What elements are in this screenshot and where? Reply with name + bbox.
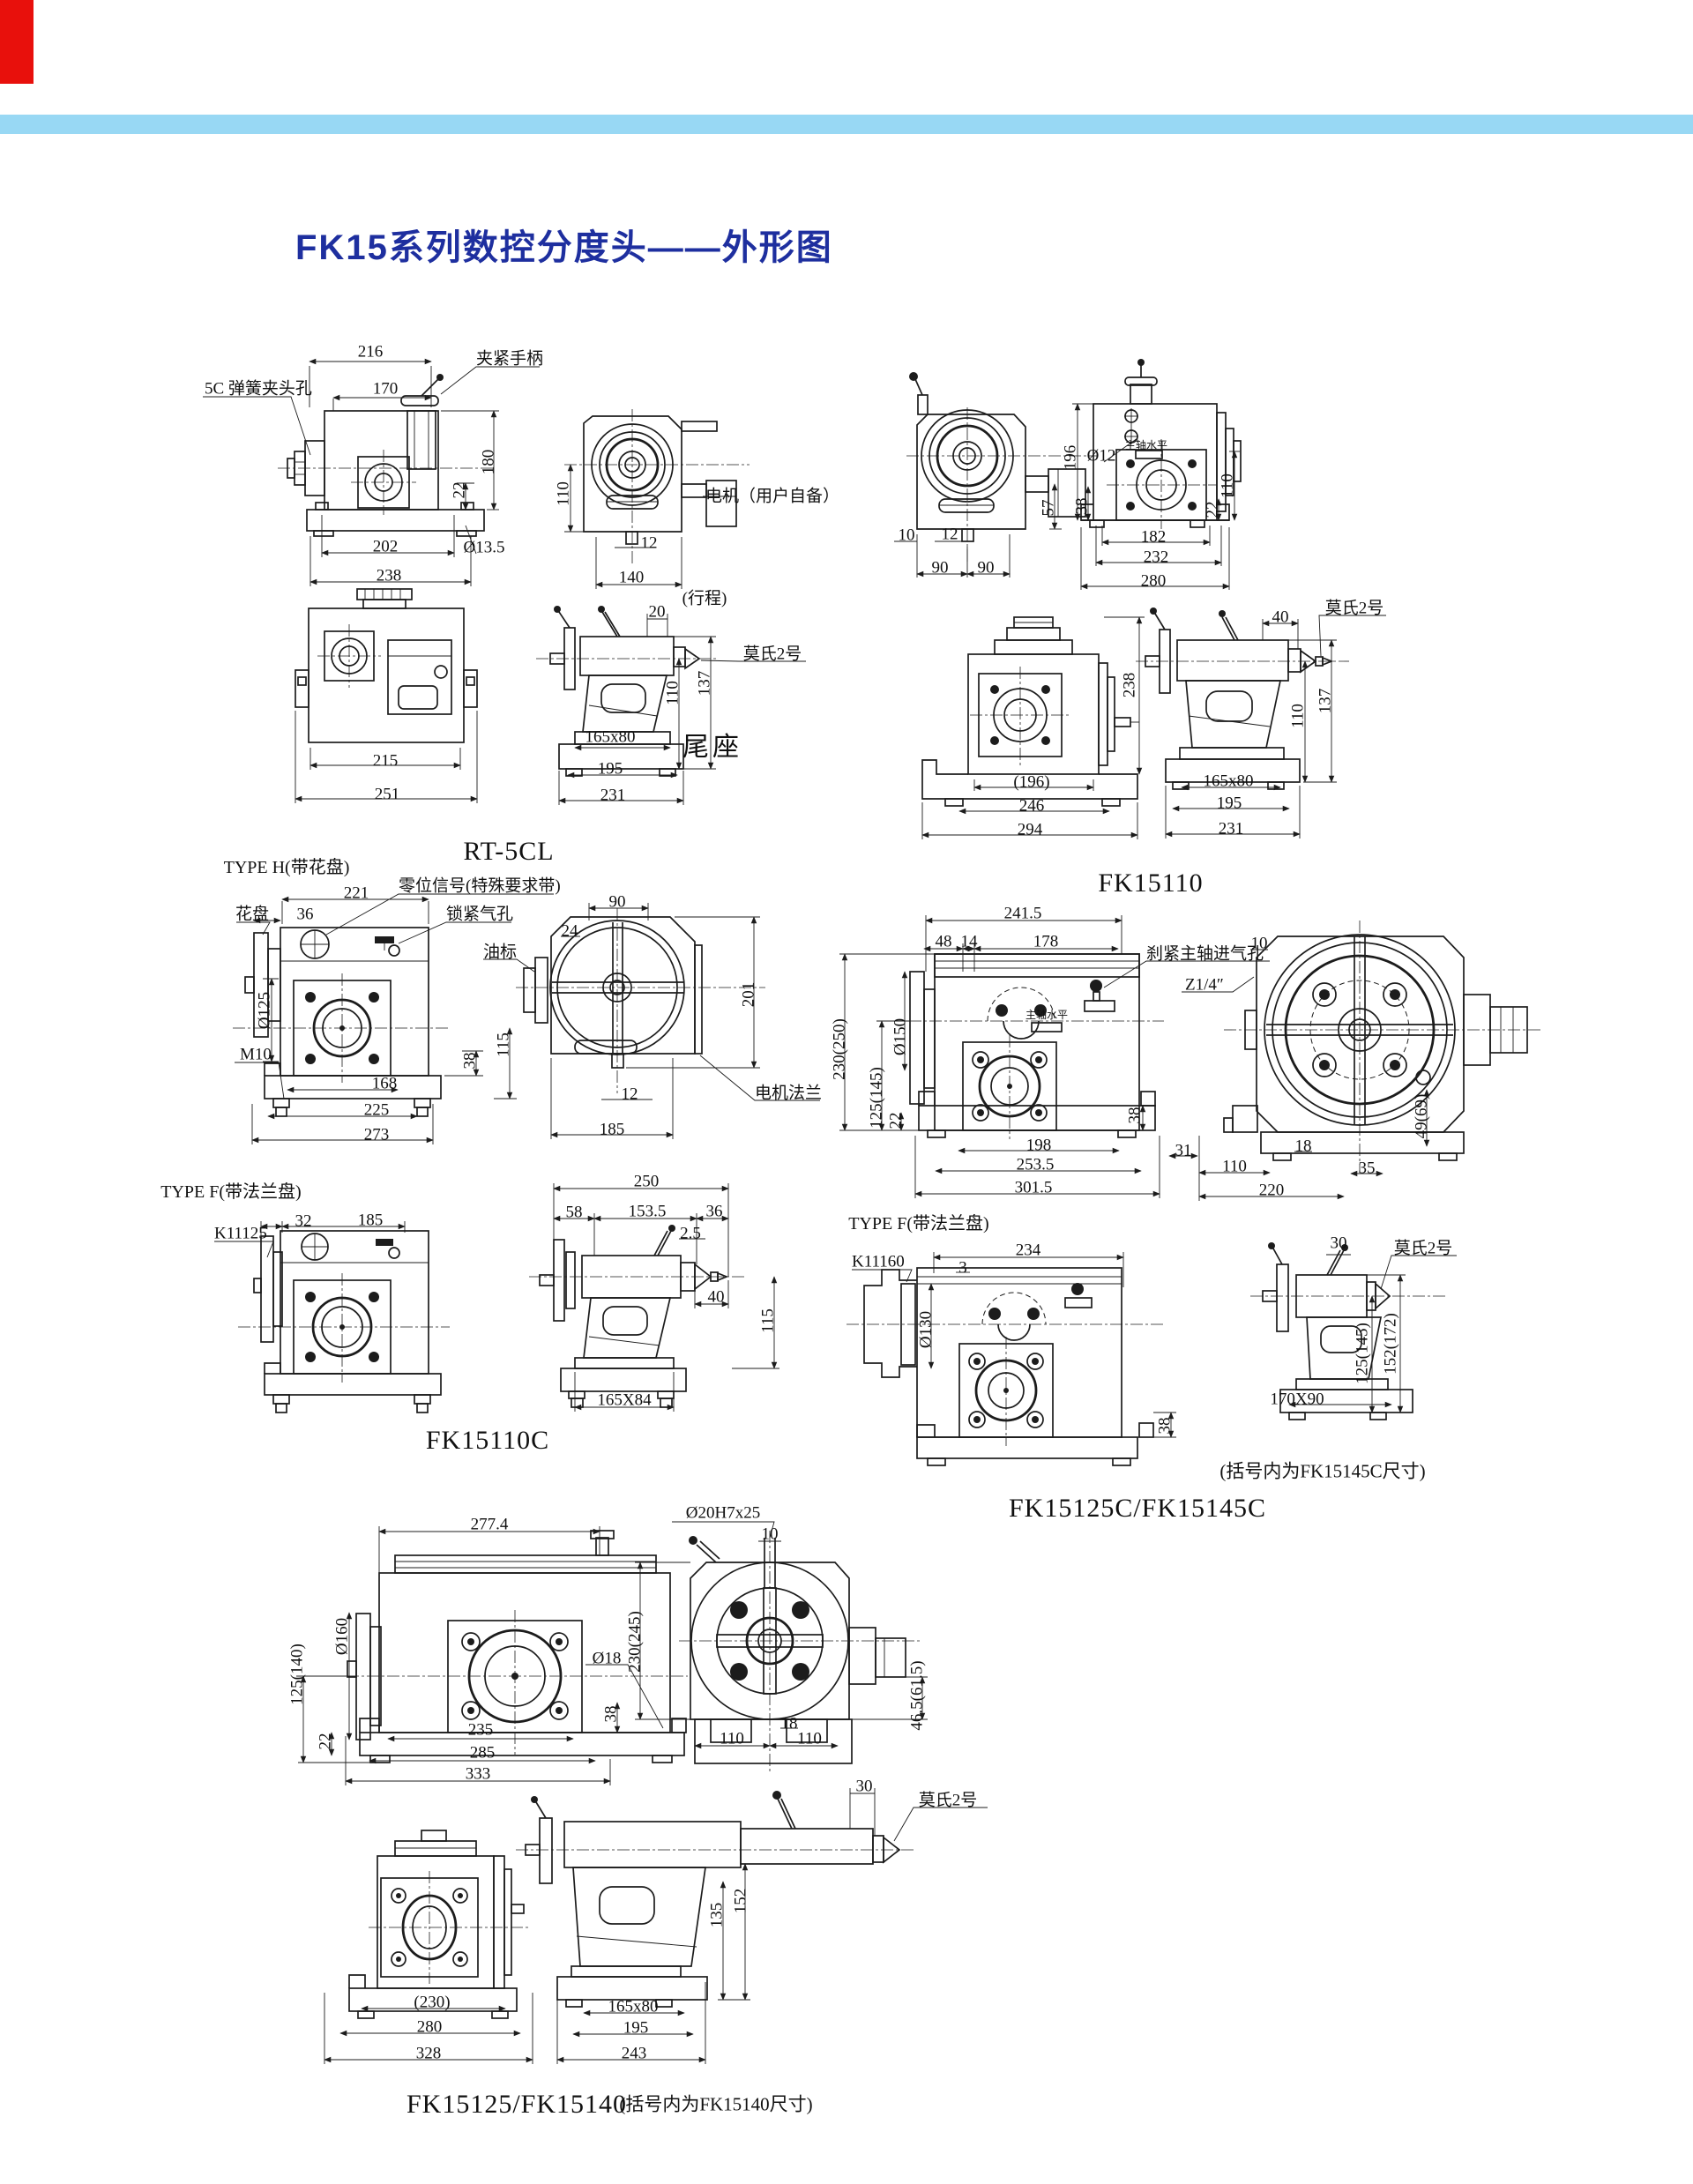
dim-label: 234: [1016, 1242, 1041, 1259]
dim-label: 202: [373, 539, 399, 555]
dim-label: 168: [372, 1076, 398, 1092]
dim-label: 3: [958, 1260, 967, 1277]
note-fk15125c: (括号内为FK15145C尺寸): [1219, 1463, 1425, 1481]
callout-label: 夹紧手柄: [476, 351, 543, 368]
dim-label: Ø12: [1087, 448, 1116, 465]
dim-label: 22: [1204, 502, 1221, 518]
dim-label: 215: [373, 753, 399, 770]
dim-label: 235: [468, 1722, 494, 1739]
dim-label: 178: [1033, 934, 1059, 950]
dim-label: 90: [932, 560, 949, 577]
dim-label: 38: [603, 1706, 620, 1723]
dim-label: 170X90: [1270, 1391, 1324, 1408]
dim-label: 231: [600, 787, 626, 804]
dim-label: 246: [1019, 798, 1045, 815]
dim-label: 36: [297, 906, 314, 923]
dim-label: 232: [1144, 549, 1169, 566]
fk15125c-front-view-f: [846, 1252, 1176, 1465]
type-heading-fk15110c: TYPE H(带花盘): [224, 859, 350, 876]
dim-label: 110: [1219, 473, 1236, 498]
dim-label: 277.4: [471, 1517, 509, 1533]
dim-label: 48: [936, 934, 952, 950]
dim-label: 110: [556, 481, 572, 506]
dim-label: 137: [1317, 689, 1334, 714]
dim-label: 24: [562, 923, 578, 940]
dim-label: 22: [451, 482, 468, 499]
fk15125-side-view: [635, 1522, 928, 1774]
dim-label: 253.5: [1017, 1157, 1055, 1174]
dim-label: 196: [1063, 445, 1079, 471]
dim-label: 57: [1040, 500, 1057, 517]
dim-label: 40: [1272, 609, 1289, 626]
rt5cl-tailstock-view: [536, 606, 806, 805]
dim-label: 152: [733, 1889, 750, 1914]
dim-label: 285: [470, 1745, 496, 1762]
callout-label: 尾座: [682, 734, 742, 761]
callout-label: 零位信号(特殊要求带): [399, 878, 561, 895]
dim-label: 333: [466, 1766, 491, 1783]
dim-label: 230(250): [832, 1018, 848, 1080]
dim-label: 165x80: [608, 1999, 659, 2016]
dim-label: 10: [762, 1526, 779, 1543]
callout-label: 电机法兰: [755, 1085, 822, 1102]
dim-label: 12: [622, 1086, 638, 1103]
dim-label: 198: [1026, 1137, 1052, 1154]
dim-label: 22: [317, 1733, 334, 1750]
dim-label: 251: [375, 786, 400, 803]
type-heading-fk15110c: TYPE F(带法兰盘): [160, 1183, 301, 1201]
dim-label: 220: [1259, 1182, 1285, 1199]
fk15110-tailstock-view: [1136, 607, 1386, 839]
dim-label: 46.5(61.5): [909, 1660, 926, 1730]
dim-label: 18: [1295, 1138, 1312, 1155]
dim-label: 35: [1359, 1160, 1376, 1177]
dim-label: 165x80: [585, 729, 636, 746]
dim-label: 153.5: [629, 1204, 667, 1220]
dim-label: 238: [1122, 673, 1138, 698]
dim-label: 32: [295, 1213, 312, 1230]
rt5cl-top-view: [295, 589, 477, 803]
caption-fk15125: FK15125/FK15140: [406, 2091, 627, 2118]
dim-label: 12: [942, 526, 958, 543]
dim-label: 165X84: [597, 1392, 651, 1409]
dim-label: 30: [856, 1778, 873, 1795]
dim-label: 49(69): [1413, 1094, 1430, 1139]
dim-label: 36: [706, 1204, 723, 1220]
note-fk15125: (括号内为FK15140尺寸): [619, 2096, 812, 2114]
callout-label: 刹紧主轴进气孔: [1146, 946, 1264, 963]
dim-label: 238: [377, 568, 402, 585]
dim-label: Ø130: [918, 1311, 935, 1348]
dim-label: 90: [978, 560, 995, 577]
callout-label: 花盘: [235, 906, 269, 923]
fk15110-side-view: [894, 372, 1098, 578]
dim-label: 110: [665, 681, 682, 705]
dim-label: 216: [358, 344, 384, 361]
dim-label: 185: [600, 1122, 625, 1138]
dim-label: Ø125: [257, 992, 273, 1029]
dim-label: 137: [697, 671, 713, 697]
dim-label: 40: [708, 1289, 725, 1306]
type-heading-fk15125c: TYPE F(带法兰盘): [848, 1215, 988, 1233]
dim-label: 18: [781, 1716, 798, 1733]
drawing-sheet: 2161705C 弹簧夹头孔夹紧手柄18022202Ø13.5238110电机（…: [0, 0, 1693, 2184]
dim-label: 152(172): [1383, 1313, 1399, 1375]
dim-label: 110: [1222, 1159, 1247, 1175]
dim-label: 135: [709, 1903, 726, 1928]
dim-label: 221: [344, 885, 369, 902]
callout-label: 锁紧气孔: [446, 906, 513, 923]
dim-label: 195: [1217, 795, 1242, 812]
dim-label: 110: [1290, 704, 1307, 728]
dim-label: 280: [417, 2019, 443, 2036]
dim-label: Ø160: [334, 1618, 351, 1655]
dim-label: 110: [797, 1731, 822, 1748]
dim-label: (230): [414, 1994, 450, 2011]
dim-label: 294: [1018, 822, 1043, 839]
dim-label: 14: [961, 934, 978, 950]
dim-label: 38: [1074, 498, 1091, 515]
dim-label: 243: [622, 2046, 647, 2062]
dim-label: 195: [623, 2020, 649, 2037]
dim-label: 180: [481, 450, 497, 475]
dim-label: 170: [373, 381, 399, 398]
dim-label: 12: [641, 535, 658, 552]
dim-label: 58: [566, 1204, 583, 1221]
dim-label: 125(145): [1354, 1323, 1371, 1384]
dim-label: 125(140): [289, 1644, 306, 1705]
dim-label: 10: [899, 527, 915, 544]
dim-label: 230(245): [627, 1611, 644, 1673]
dim-label: 30: [1331, 1235, 1347, 1252]
dim-label: Ø13.5: [464, 540, 505, 556]
dim-label: 165x80: [1204, 773, 1254, 790]
callout-label: 莫氏2号: [743, 646, 802, 663]
dim-label: 273: [364, 1127, 390, 1144]
dim-label: 201: [741, 982, 757, 1008]
caption-fk15110: FK15110: [1098, 870, 1203, 897]
callout-label: 莫氏2号: [1394, 1241, 1453, 1257]
callout-label: 油标: [483, 944, 517, 961]
dim-label: 280: [1141, 573, 1167, 590]
dim-label: 115: [760, 1308, 777, 1333]
callout-label: 莫氏2号: [919, 1793, 978, 1809]
dim-label: 328: [416, 2046, 442, 2062]
dim-label: 241.5: [1004, 906, 1042, 922]
dim-label: 182: [1141, 529, 1167, 546]
dim-label: Z1/4″: [1185, 977, 1224, 994]
callout-label: 莫氏2号: [1325, 600, 1384, 617]
dim-label: (196): [1013, 774, 1049, 791]
callout-label: 5C 弹簧夹头孔: [205, 381, 312, 398]
dim-label: Ø20H7x25: [686, 1505, 760, 1522]
dim-label: 125(145): [869, 1067, 885, 1129]
caption-rt5cl: RT-5CL: [463, 839, 554, 865]
dim-label: 185: [358, 1212, 384, 1229]
fk15110c-front-view-h: [233, 894, 554, 1144]
dim-label: 38: [1127, 1107, 1144, 1124]
dim-label: 250: [634, 1174, 660, 1190]
fk15110c-side-view: [483, 903, 820, 1139]
technical-drawing-canvas: [0, 0, 1693, 2184]
dim-label: 115: [496, 1032, 512, 1057]
callout-label: (行程): [682, 591, 727, 607]
dim-label: 38: [462, 1053, 479, 1070]
fk15110c-front-view-f: [214, 1221, 450, 1413]
dim-label: Ø150: [892, 1018, 909, 1055]
dim-label: K11160: [852, 1254, 905, 1271]
dim-label: M10: [240, 1047, 272, 1063]
callout-label: 电机（用户自备）: [705, 488, 839, 505]
dim-label: 主轴水平: [1025, 1010, 1068, 1020]
dim-label: 195: [598, 761, 623, 778]
dim-label: 231: [1219, 821, 1244, 838]
dim-label: 90: [609, 894, 626, 911]
dim-label: Ø18: [593, 1651, 622, 1667]
dim-label: 38: [1157, 1418, 1174, 1435]
dim-label: 10: [1251, 935, 1268, 952]
dim-label: 225: [364, 1102, 390, 1119]
caption-fk15110c: FK15110C: [426, 1427, 549, 1454]
caption-fk15125c: FK15125C/FK15145C: [1009, 1495, 1266, 1522]
dim-label: 20: [649, 604, 666, 621]
dim-label: 2.5: [680, 1226, 701, 1242]
dim-label: 140: [619, 570, 645, 586]
dim-label: K11125: [214, 1226, 267, 1242]
dim-label: 31: [1175, 1143, 1192, 1159]
dim-label: 301.5: [1015, 1180, 1053, 1196]
dim-label: 22: [888, 1113, 905, 1129]
dim-label: 主轴水平: [1125, 440, 1167, 451]
fk15125-tailstock-view: [516, 1788, 988, 2064]
dim-label: 110: [720, 1731, 744, 1748]
